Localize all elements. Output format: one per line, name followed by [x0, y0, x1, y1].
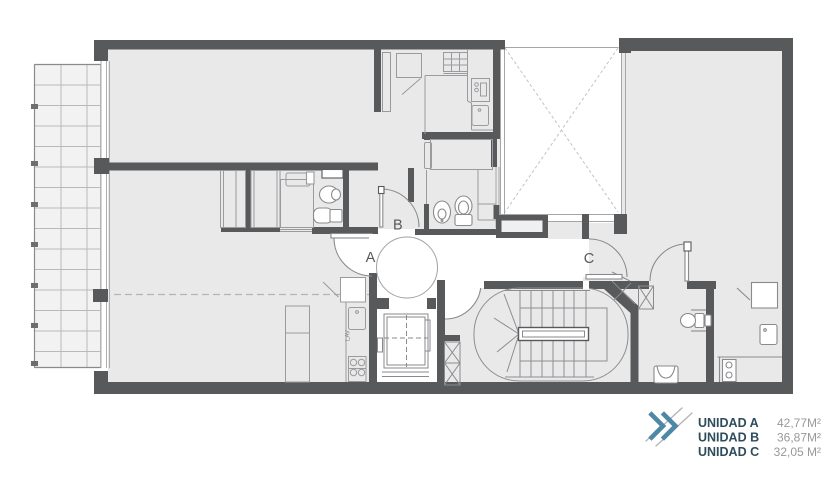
svg-text:B: B: [393, 218, 403, 234]
svg-text:UNIDAD B: UNIDAD B: [698, 431, 759, 445]
svg-text:A: A: [366, 250, 376, 266]
svg-text:UNIDAD C: UNIDAD C: [698, 445, 759, 459]
svg-text:UNIDAD A: UNIDAD A: [698, 416, 759, 430]
svg-text:36,87M²: 36,87M²: [777, 431, 821, 445]
svg-text:42,77M²: 42,77M²: [777, 416, 821, 430]
svg-text:32,05 M²: 32,05 M²: [774, 445, 821, 459]
svg-text:LAV: LAV: [346, 330, 352, 341]
svg-text:C: C: [584, 251, 594, 267]
